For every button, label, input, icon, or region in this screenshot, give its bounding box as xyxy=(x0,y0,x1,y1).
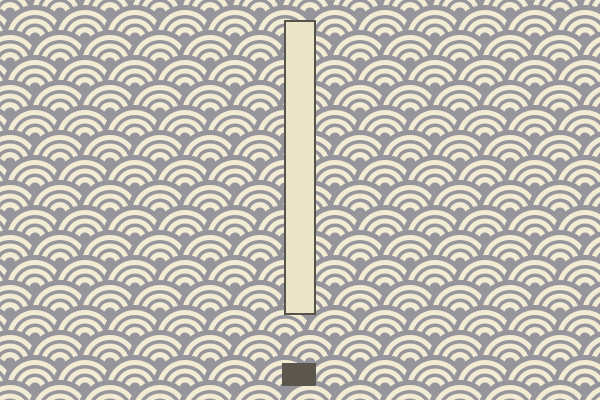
game-stage[interactable] xyxy=(0,0,600,400)
pillar-obstacle[interactable] xyxy=(284,20,316,315)
block-object[interactable] xyxy=(282,363,316,386)
